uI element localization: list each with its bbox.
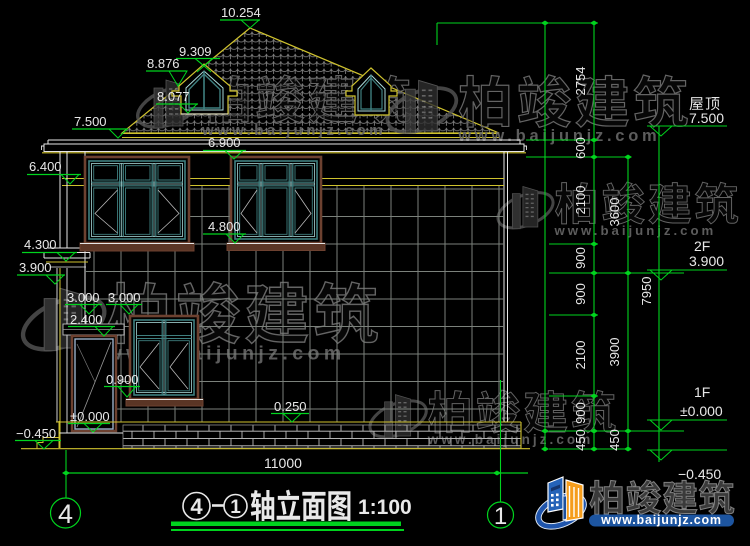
svg-text:3600: 3600 [607,198,622,227]
svg-text:3.000: 3.000 [108,290,141,305]
svg-text:−0.450: −0.450 [678,466,721,482]
svg-text:2754: 2754 [573,67,588,96]
svg-text:900: 900 [573,283,588,305]
svg-text:7.500: 7.500 [74,114,107,129]
svg-text:2.400: 2.400 [70,312,103,327]
svg-text:900: 900 [573,402,588,424]
svg-text:1: 1 [230,497,241,518]
svg-text:1:100: 1:100 [358,496,412,519]
svg-text:1F: 1F [694,384,710,400]
svg-text:3900: 3900 [607,338,622,367]
svg-text:8.077: 8.077 [157,89,190,104]
svg-text:4: 4 [58,499,73,529]
svg-text:4.800: 4.800 [208,219,241,234]
svg-text:600: 600 [573,137,588,159]
svg-text:±0.000: ±0.000 [680,403,723,419]
svg-text:6.900: 6.900 [208,135,241,150]
svg-text:3.900: 3.900 [19,260,52,275]
svg-text:0.900: 0.900 [106,372,139,387]
svg-text:2100: 2100 [573,341,588,370]
svg-text:9.309: 9.309 [179,44,212,59]
svg-text:−0.450: −0.450 [16,426,56,441]
svg-text:4.300: 4.300 [24,237,57,252]
svg-text:8.876: 8.876 [147,56,180,71]
svg-text:11000: 11000 [264,455,302,471]
svg-text:www.baijunjz.com: www.baijunjz.com [600,513,722,527]
svg-text:4: 4 [190,494,203,519]
svg-text:3.900: 3.900 [689,253,724,269]
svg-text:0.250: 0.250 [274,399,307,414]
svg-text:7950: 7950 [639,277,654,306]
svg-text:2100: 2100 [573,186,588,215]
svg-text:±0.000: ±0.000 [70,409,110,424]
svg-text:450: 450 [607,429,622,451]
svg-text:3.000: 3.000 [67,290,100,305]
svg-text:10.254: 10.254 [221,5,261,20]
svg-text:2F: 2F [694,238,710,254]
svg-text:6.400: 6.400 [29,159,62,174]
svg-text:1: 1 [494,503,507,530]
svg-text:450: 450 [573,429,588,451]
svg-text:900: 900 [573,247,588,269]
svg-text:7.500: 7.500 [689,110,724,126]
